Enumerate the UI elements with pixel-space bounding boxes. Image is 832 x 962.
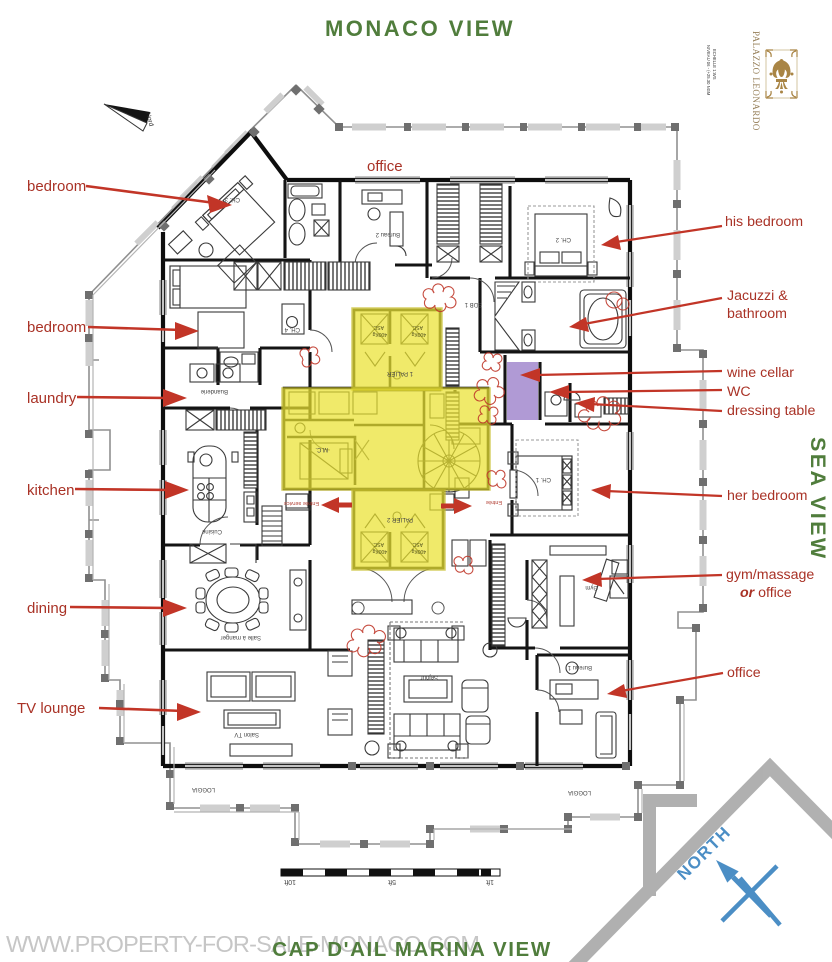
svg-text:NIVEAU 06 - (+25.30 NGM: NIVEAU 06 - (+25.30 NGM xyxy=(706,45,711,96)
svg-text:1 PALIER: 1 PALIER xyxy=(386,370,413,376)
svg-text:SEA VIEW: SEA VIEW xyxy=(806,437,830,561)
svg-text:ASC.: ASC. xyxy=(411,541,423,547)
svg-text:LOGGIA: LOGGIA xyxy=(568,789,591,795)
svg-text:Entrée: Entrée xyxy=(486,499,502,505)
svg-text:CAP D'AIL MARINA VIEW: CAP D'AIL MARINA VIEW xyxy=(272,938,552,961)
svg-text:ASC.: ASC. xyxy=(372,541,384,547)
svg-text:MONACO VIEW: MONACO VIEW xyxy=(325,16,515,41)
svg-text:her bedroom: her bedroom xyxy=(727,488,807,504)
svg-text:LOGGIA: LOGGIA xyxy=(192,786,215,792)
svg-text:ASC.: ASC. xyxy=(411,324,423,330)
svg-text:ASC.: ASC. xyxy=(372,324,384,330)
svg-text:dressing table: dressing table xyxy=(727,403,815,419)
svg-text:bathroom: bathroom xyxy=(727,306,787,322)
svg-text:laundry: laundry xyxy=(27,390,77,407)
svg-text:wine cellar: wine cellar xyxy=(726,365,794,381)
svg-text:Salon TV: Salon TV xyxy=(234,731,259,737)
svg-text:Bureau 1: Bureau 1 xyxy=(567,664,592,670)
svg-text:CH. 1: CH. 1 xyxy=(535,476,551,482)
svg-text:Salle à manger: Salle à manger xyxy=(221,634,261,640)
svg-text:bedroom: bedroom xyxy=(27,178,86,195)
svg-text:Bureau 2: Bureau 2 xyxy=(375,231,400,237)
svg-text:dining: dining xyxy=(27,600,67,617)
svg-text:400Kg: 400Kg xyxy=(411,548,426,554)
svg-text:CH. 4: CH. 4 xyxy=(284,326,300,332)
svg-text:gym/massage: gym/massage xyxy=(726,567,814,583)
svg-text:Séjour: Séjour xyxy=(421,674,438,680)
svg-text:400Kg: 400Kg xyxy=(411,331,426,337)
svg-text:400Kg: 400Kg xyxy=(372,548,387,554)
svg-text:Cuisine: Cuisine xyxy=(201,528,222,534)
svg-text:SDB 1: SDB 1 xyxy=(464,301,482,307)
svg-text:CH. 3: CH. 3 xyxy=(224,196,240,202)
svg-text:PALAZZO LEONARDO: PALAZZO LEONARDO xyxy=(751,31,761,131)
svg-text:Jacuzzi &: Jacuzzi & xyxy=(727,288,788,304)
svg-text:ECHELLE 1:WS: ECHELLE 1:WS xyxy=(712,49,717,80)
svg-text:his bedroom: his bedroom xyxy=(725,214,803,230)
svg-text:office: office xyxy=(727,665,761,681)
svg-text:TV lounge: TV lounge xyxy=(17,700,85,717)
svg-text:400Kg: 400Kg xyxy=(372,331,387,337)
svg-text:or office: or office xyxy=(740,585,792,601)
svg-text:10ft: 10ft xyxy=(284,878,296,885)
svg-text:kitchen: kitchen xyxy=(27,482,75,499)
svg-text:WC: WC xyxy=(727,384,751,400)
svg-text:PALIER 2: PALIER 2 xyxy=(386,516,413,522)
svg-text:Entrée service: Entrée service xyxy=(284,500,319,506)
svg-text:5ft: 5ft xyxy=(388,878,396,885)
svg-text:1ft: 1ft xyxy=(486,878,494,885)
svg-text:office: office xyxy=(367,158,403,175)
svg-text:Gym: Gym xyxy=(585,584,598,590)
svg-text:Buanderie: Buanderie xyxy=(200,388,228,394)
svg-text:M.C.: M.C. xyxy=(315,446,328,452)
svg-text:bedroom: bedroom xyxy=(27,319,86,336)
svg-text:CH. 2: CH. 2 xyxy=(555,236,571,242)
